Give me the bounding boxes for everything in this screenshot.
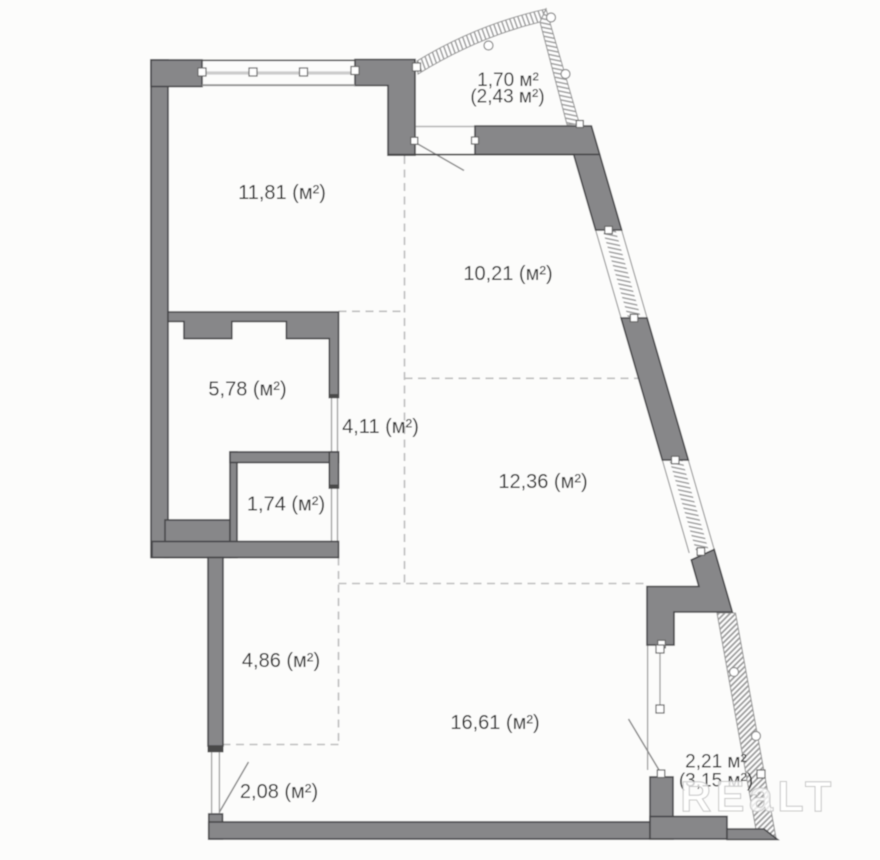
svg-text:12,36 (м²): 12,36 (м²)	[498, 471, 587, 493]
svg-text:10,21 (м²): 10,21 (м²)	[463, 263, 552, 285]
svg-text:(2,43 м²): (2,43 м²)	[470, 87, 544, 108]
svg-text:4,11 (м²): 4,11 (м²)	[342, 416, 419, 438]
svg-text:4,86 (м²): 4,86 (м²)	[242, 650, 320, 672]
svg-text:2,21 м²: 2,21 м²	[685, 752, 747, 773]
svg-text:11,81 (м²): 11,81 (м²)	[238, 182, 326, 204]
svg-text:2,08 (м²): 2,08 (м²)	[240, 781, 318, 803]
svg-text:5,78 (м²): 5,78 (м²)	[208, 379, 286, 401]
svg-text:1,74 (м²): 1,74 (м²)	[247, 494, 325, 516]
svg-text:16,61 (м²): 16,61 (м²)	[450, 712, 539, 734]
svg-text:REaLT: REaLT	[680, 773, 836, 821]
